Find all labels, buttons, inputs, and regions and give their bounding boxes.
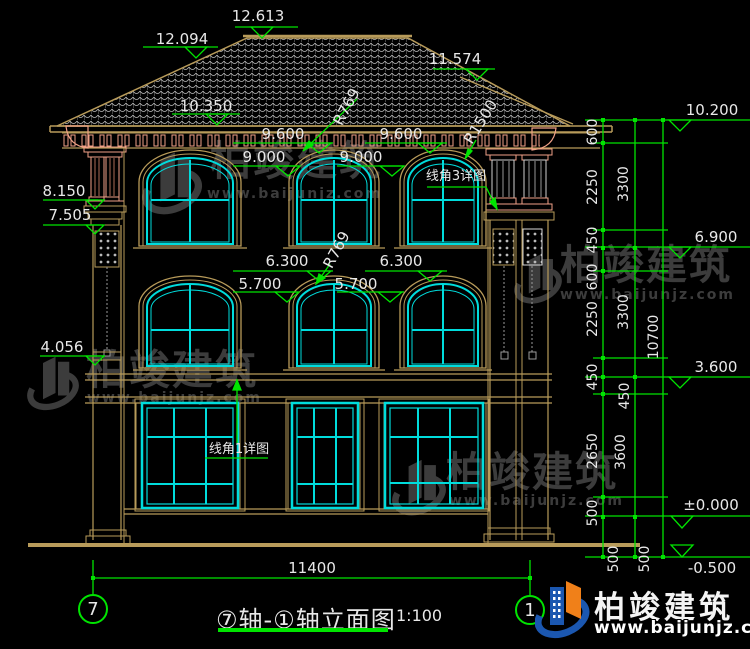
- chain-dim: 3300: [617, 294, 631, 330]
- axis-number: 7: [87, 599, 98, 620]
- elevation-ridge: 12.613: [232, 9, 285, 24]
- elevation-right-minus: -0.500: [688, 561, 736, 576]
- chain-dim: 500: [638, 546, 652, 573]
- elevation-roof-left: 12.094: [156, 32, 209, 47]
- chain-dim: 450: [586, 227, 600, 254]
- elevation-right-f3: 6.900: [695, 230, 738, 245]
- chain-dim: 2250: [586, 169, 600, 205]
- elevation-left-mid: 4.056: [41, 340, 84, 355]
- dim-f2-head-right: 6.300: [380, 254, 423, 269]
- dim-f3-head-right: 9.600: [380, 127, 423, 142]
- dim-f2-head-left: 6.300: [266, 254, 309, 269]
- axis-bubble-7: 7: [78, 594, 108, 624]
- ground-line: [28, 543, 640, 547]
- detail-label-cornice3: 线角3详图: [426, 170, 486, 183]
- cad-elevation-drawing: 柏竣建筑 www.baijunjz.com 柏竣建筑 www.baijunjz.…: [0, 0, 750, 649]
- dim-f2-arch-left: 5.700: [239, 277, 282, 292]
- chain-dim: 500: [586, 500, 600, 527]
- chain-dim: 2250: [586, 301, 600, 337]
- dim-f3-arch-right: 9.000: [340, 150, 383, 165]
- drawing-scale: 1:100: [396, 606, 442, 625]
- dim-f3-head-left: 9.600: [262, 127, 305, 142]
- dim-f2-arch-right: 5.700: [335, 277, 378, 292]
- cornice-frieze: [62, 126, 600, 150]
- right-column: [484, 149, 554, 542]
- elevation-left-cap: 7.505: [49, 208, 92, 223]
- dim-f3-arch-left: 9.000: [243, 150, 286, 165]
- detail-label-cornice1: 线角1详图: [209, 443, 269, 456]
- dim-overall-width: 11400: [288, 561, 336, 576]
- chain-dim: 450: [586, 364, 600, 391]
- chain-dim: 450: [618, 383, 632, 410]
- chain-dim-total: 10700: [647, 315, 661, 360]
- second-floor-windows: [133, 276, 492, 370]
- chain-dim: 600: [586, 264, 600, 291]
- chain-dim: 500: [607, 546, 621, 573]
- chain-dim: 600: [586, 119, 600, 146]
- axis-number: 1: [524, 600, 535, 621]
- elevation-eave: 10.350: [180, 99, 233, 114]
- title-underline: [218, 628, 388, 632]
- elevation-right-f2: 3.600: [695, 360, 738, 375]
- elevation-roof-right: 11.574: [429, 52, 482, 67]
- company-logo-icon: [535, 575, 593, 645]
- elevation-left-top: 8.150: [43, 184, 86, 199]
- chain-dim: 2650: [586, 433, 600, 469]
- company-url: www.baijunjz.com: [594, 618, 750, 638]
- elevation-right-top: 10.200: [686, 103, 739, 118]
- elevation-right-zero: ±0.000: [683, 498, 739, 513]
- chain-dim: 3300: [617, 166, 631, 202]
- chain-dim: 3600: [614, 434, 628, 470]
